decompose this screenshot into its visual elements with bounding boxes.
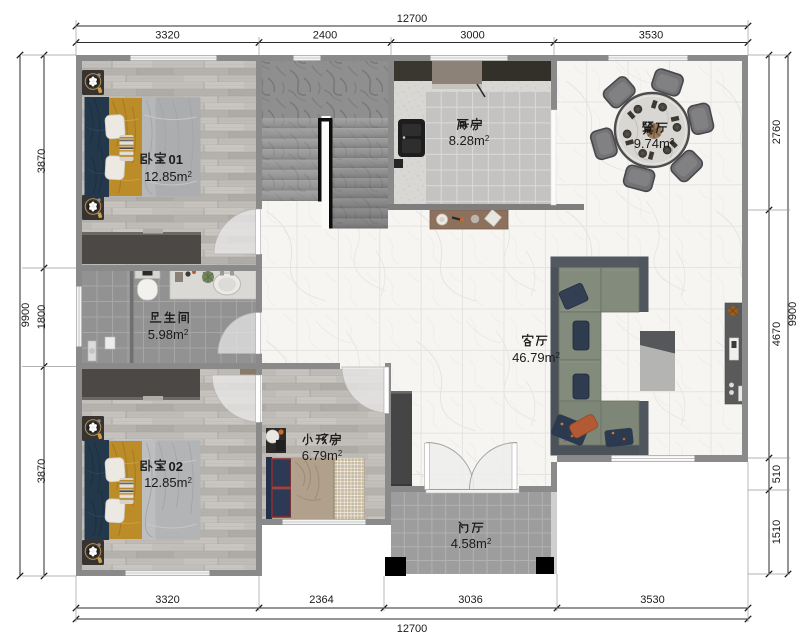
svg-text:4670: 4670 xyxy=(771,322,783,346)
svg-text:3320: 3320 xyxy=(155,594,179,606)
svg-text:12700: 12700 xyxy=(397,623,428,635)
svg-text:4.58m2: 4.58m2 xyxy=(451,536,492,551)
svg-text:3870: 3870 xyxy=(36,459,48,483)
svg-text:46.79m2: 46.79m2 xyxy=(512,350,560,365)
svg-text:12700: 12700 xyxy=(397,13,428,25)
svg-text:9900: 9900 xyxy=(787,302,799,326)
svg-text:2760: 2760 xyxy=(771,120,783,144)
svg-text:02: 02 xyxy=(169,459,183,474)
svg-text:8.28m2: 8.28m2 xyxy=(449,133,490,148)
svg-text:3000: 3000 xyxy=(460,30,484,42)
svg-text:6.79m2: 6.79m2 xyxy=(302,448,343,463)
svg-text:1510: 1510 xyxy=(771,520,783,544)
svg-text:12.85m2: 12.85m2 xyxy=(144,169,192,184)
svg-text:510: 510 xyxy=(771,465,783,483)
svg-text:3530: 3530 xyxy=(639,30,663,42)
svg-text:01: 01 xyxy=(169,152,183,167)
svg-text:3036: 3036 xyxy=(458,594,482,606)
svg-text:12.85m2: 12.85m2 xyxy=(144,475,192,490)
svg-text:2364: 2364 xyxy=(309,594,333,606)
svg-text:9900: 9900 xyxy=(20,303,32,327)
svg-text:1800: 1800 xyxy=(36,305,48,329)
svg-text:3320: 3320 xyxy=(155,30,179,42)
svg-text:9.74m2: 9.74m2 xyxy=(634,136,675,151)
svg-text:3530: 3530 xyxy=(640,594,664,606)
svg-text:5.98m2: 5.98m2 xyxy=(148,327,189,342)
svg-text:3870: 3870 xyxy=(36,149,48,173)
svg-text:2400: 2400 xyxy=(313,30,337,42)
